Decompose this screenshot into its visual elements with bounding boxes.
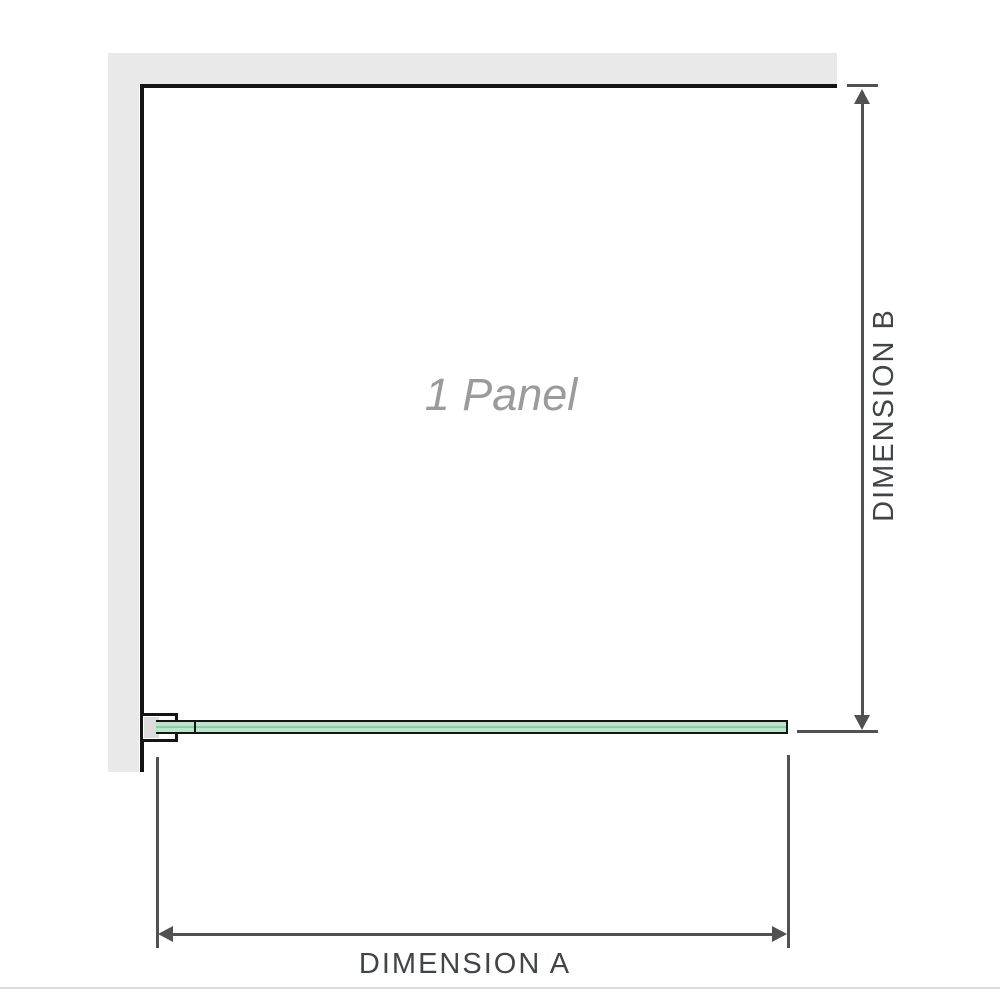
panel-count-label: 1 Panel bbox=[341, 366, 661, 424]
dimension-a-line bbox=[164, 933, 784, 936]
dimension-b-line bbox=[861, 92, 864, 726]
wall-edge-top bbox=[140, 84, 837, 88]
dimension-a-extension-left bbox=[156, 757, 159, 948]
dimension-b-tick-bottom bbox=[797, 730, 878, 733]
dimension-a-label: DIMENSION A bbox=[340, 949, 590, 979]
dimension-a-extension-right bbox=[787, 755, 790, 948]
wall-edge-left bbox=[140, 84, 144, 772]
bottom-divider bbox=[0, 987, 1000, 989]
arrow-right-icon bbox=[772, 926, 787, 942]
glass-panel bbox=[156, 720, 788, 734]
arrow-up-icon bbox=[854, 89, 870, 104]
wall-top-segment bbox=[108, 53, 837, 84]
arrow-down-icon bbox=[854, 715, 870, 730]
dimension-b-label: DIMENSION B bbox=[869, 295, 899, 535]
dimension-b-tick-top bbox=[847, 84, 878, 87]
glass-panel-end-in-bracket bbox=[156, 720, 196, 734]
wall-left-segment bbox=[108, 53, 139, 772]
arrow-left-icon bbox=[158, 926, 173, 942]
